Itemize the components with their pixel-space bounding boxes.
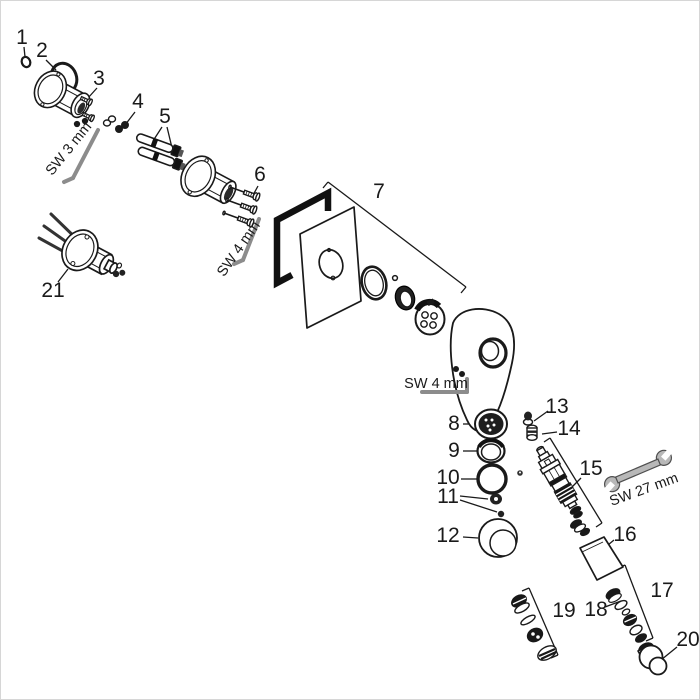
part-12-cap	[479, 519, 517, 557]
part-label-16: 16	[613, 523, 636, 547]
part-label-1: 1	[16, 26, 28, 50]
exploded-diagram-canvas	[1, 1, 700, 700]
part-20-knob	[638, 646, 667, 675]
part-label-21: 21	[41, 279, 64, 303]
part-label-13: 13	[545, 395, 568, 419]
part-label-17: 17	[650, 579, 673, 603]
small-clip	[393, 276, 398, 281]
seal-ring	[358, 264, 390, 302]
part-label-3: 3	[93, 67, 105, 91]
part-label-6: 6	[254, 163, 266, 187]
part-label-18: 18	[584, 598, 607, 622]
cartridge-adapter	[416, 298, 445, 334]
part-label-15: 15	[579, 457, 602, 481]
part-label-9: 9	[448, 439, 460, 463]
part-14-bushing	[527, 425, 537, 440]
part-label-19: 19	[552, 599, 575, 623]
part-8-aerator	[475, 410, 507, 439]
part-4-fittings	[104, 116, 130, 133]
part-label-8: 8	[448, 412, 460, 436]
part-label-4: 4	[132, 90, 144, 114]
part-label-14: 14	[557, 417, 580, 441]
part-7-escutcheon	[300, 207, 361, 328]
part-9-ring	[478, 440, 505, 463]
wall-flange-body	[174, 150, 243, 213]
part-label-20: 20	[676, 628, 699, 652]
part-label-5: 5	[159, 105, 171, 129]
part-19-stack	[509, 592, 559, 664]
part-1-oring	[20, 56, 31, 69]
leader-lines	[24, 47, 677, 660]
part-label-12: 12	[436, 524, 459, 548]
sw4-handle-annotation: SW 4 mm	[404, 376, 468, 392]
part-15-cartridge	[530, 442, 587, 521]
stop-ring	[393, 284, 418, 312]
part-5-hoses	[131, 132, 190, 171]
part-10-oring	[478, 465, 506, 493]
diagram-page: 1 2 3 4 5 6 7 8 9 10 11 12 13 14 15 16 1…	[0, 0, 700, 700]
part-13-bit	[524, 412, 533, 426]
small-screw-dot	[517, 470, 523, 476]
part-label-11: 11	[437, 485, 459, 509]
part-label-7: 7	[373, 180, 385, 204]
part-11-screws	[490, 494, 504, 518]
part-label-2: 2	[36, 39, 48, 63]
